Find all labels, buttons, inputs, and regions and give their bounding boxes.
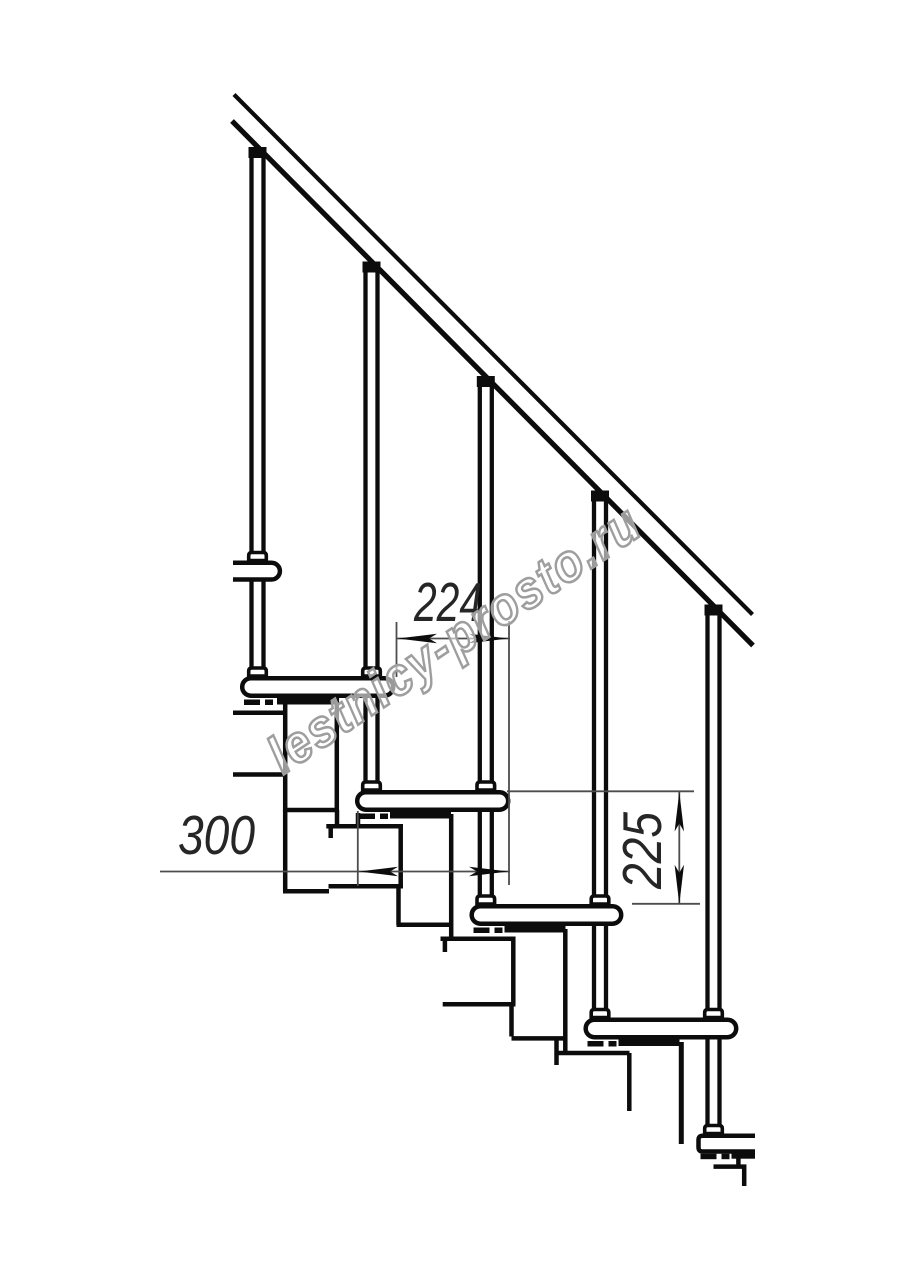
svg-text:300: 300 xyxy=(178,804,255,866)
svg-text:225: 225 xyxy=(611,812,673,890)
